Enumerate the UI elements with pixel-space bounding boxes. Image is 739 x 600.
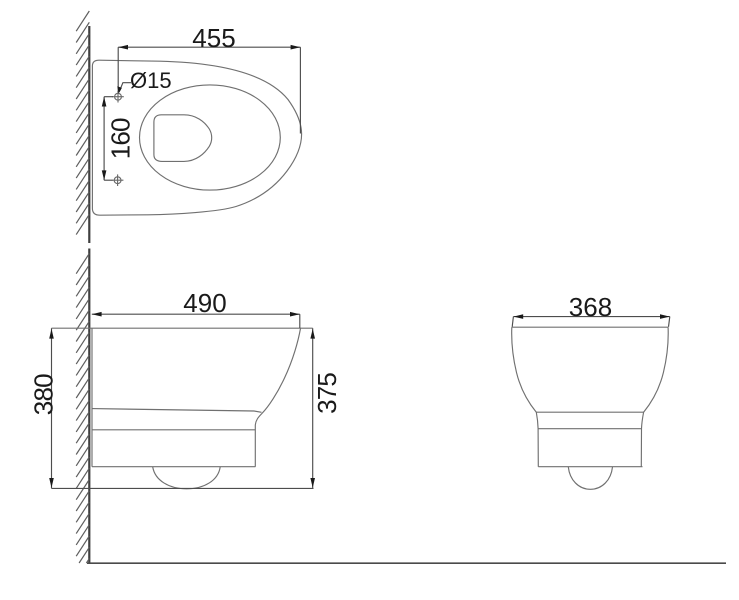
svg-text:375: 375	[312, 373, 342, 414]
svg-text:368: 368	[569, 292, 612, 322]
svg-text:490: 490	[183, 288, 226, 318]
svg-text:380: 380	[28, 374, 58, 415]
svg-text:Ø15: Ø15	[130, 68, 172, 93]
svg-text:160: 160	[106, 118, 136, 159]
svg-text:455: 455	[192, 23, 235, 53]
